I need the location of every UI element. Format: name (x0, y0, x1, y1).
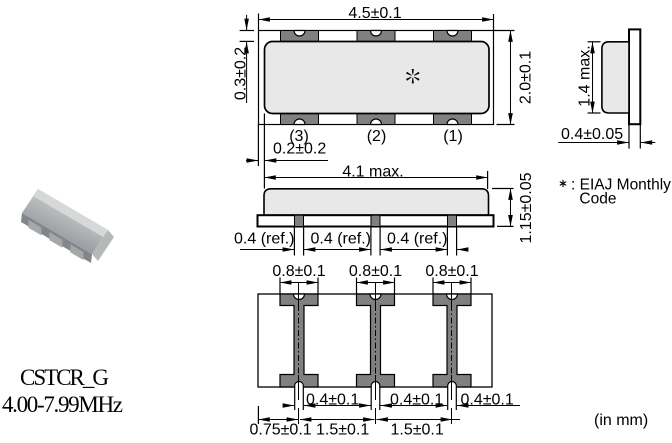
svg-text:1.4 max.: 1.4 max. (577, 45, 594, 106)
svg-text:4.1 max.: 4.1 max. (342, 164, 403, 181)
svg-text:0.8±0.1: 0.8±0.1 (272, 263, 325, 280)
svg-text:(in mm): (in mm) (594, 412, 648, 429)
svg-text:4.00-7.99MHz: 4.00-7.99MHz (2, 392, 123, 417)
svg-text:0.3±0.2: 0.3±0.2 (233, 47, 250, 100)
svg-text:2.0±0.1: 2.0±0.1 (518, 51, 535, 104)
svg-text:0.4 (ref.): 0.4 (ref.) (311, 231, 371, 248)
svg-text:CSTCR_G: CSTCR_G (20, 365, 109, 390)
svg-text:0.4±0.1: 0.4±0.1 (390, 392, 443, 409)
svg-text:0.8±0.1: 0.8±0.1 (349, 263, 402, 280)
svg-text:0.4±0.1: 0.4±0.1 (306, 392, 359, 409)
svg-text:0.75±0.1: 0.75±0.1 (250, 422, 312, 439)
svg-text:0.8±0.1: 0.8±0.1 (425, 263, 478, 280)
svg-text:0.4±0.05: 0.4±0.05 (561, 126, 623, 143)
svg-text:0.4±0.1: 0.4±0.1 (461, 392, 514, 409)
svg-text:0.4 (ref.): 0.4 (ref.) (234, 231, 294, 248)
svg-text:1.15±0.05: 1.15±0.05 (518, 172, 535, 243)
svg-text:1.5±0.1: 1.5±0.1 (316, 422, 369, 439)
svg-text:(1): (1) (443, 128, 463, 145)
svg-text:4.5±0.1: 4.5±0.1 (348, 5, 401, 22)
svg-text:0.4 (ref.): 0.4 (ref.) (387, 231, 447, 248)
svg-text:1.5±0.1: 1.5±0.1 (391, 422, 444, 439)
svg-text:(2): (2) (367, 128, 387, 145)
svg-text:0.2±0.2: 0.2±0.2 (273, 141, 326, 158)
svg-text:Code: Code (579, 191, 616, 208)
